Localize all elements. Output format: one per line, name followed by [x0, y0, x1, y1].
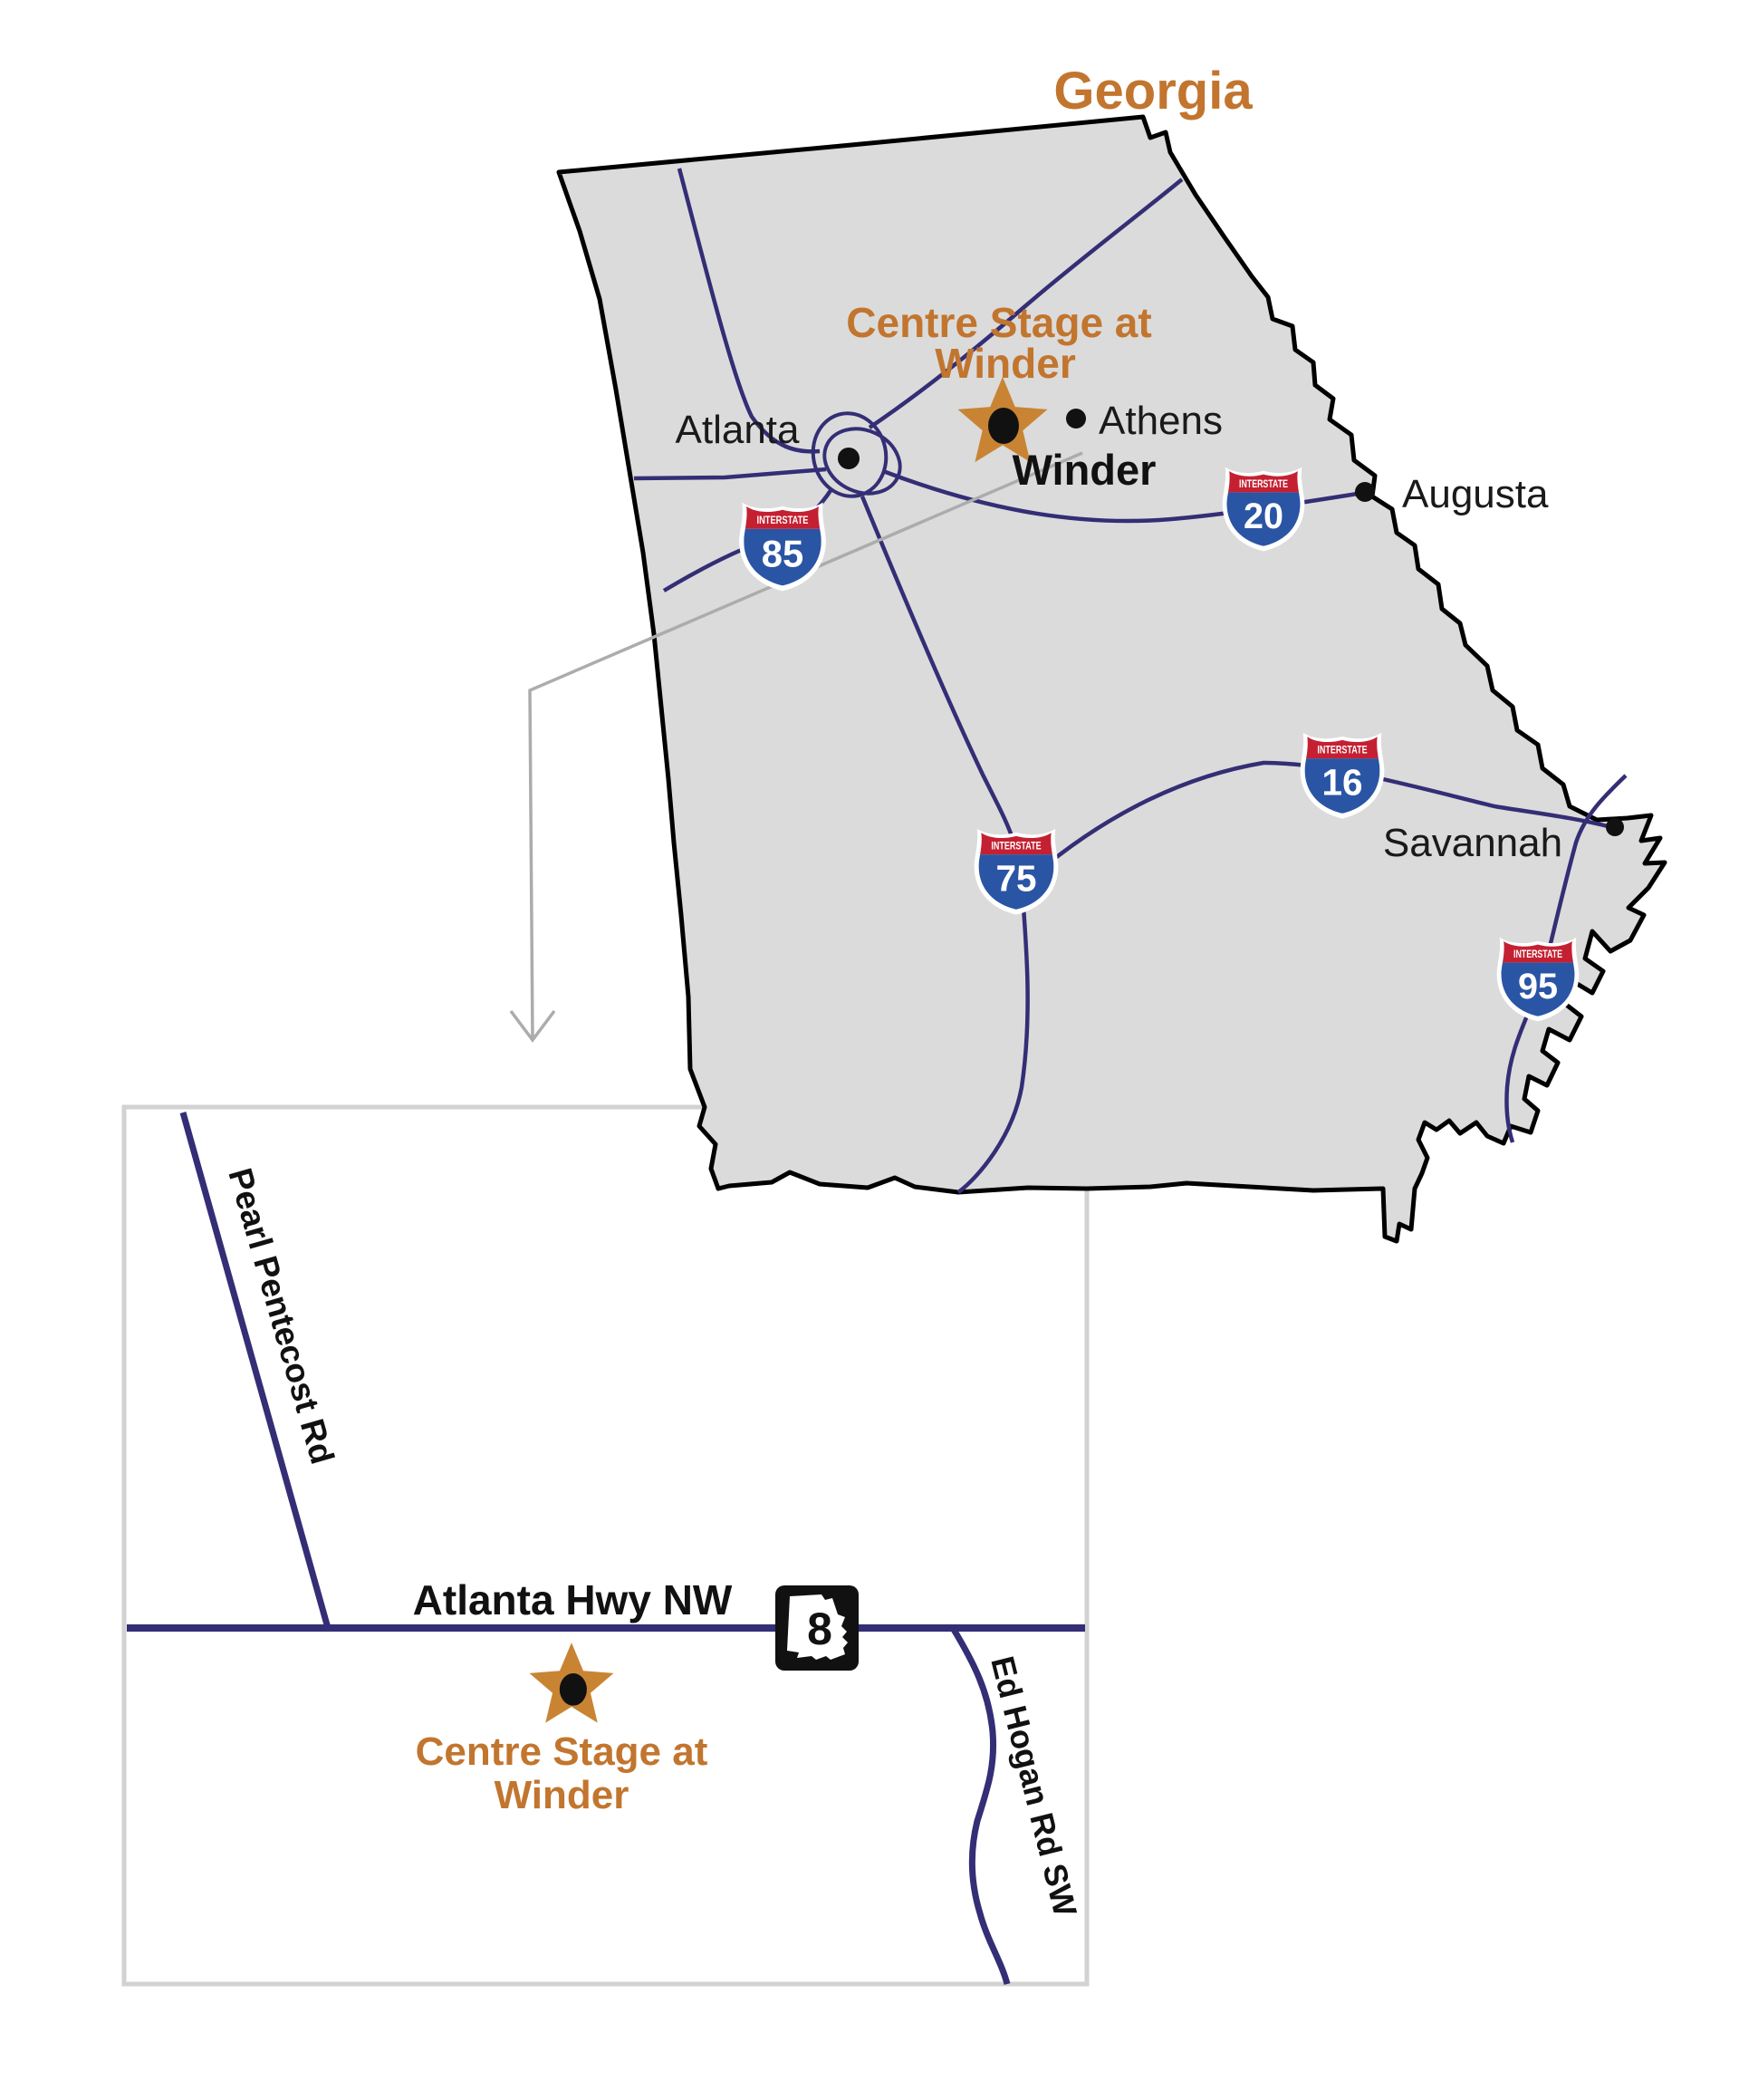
interstate-banner-text: INTERSTATE [1513, 949, 1562, 960]
georgia-outline [559, 117, 1665, 1241]
inset-venue-label-line2: Winder [495, 1773, 629, 1817]
interstate-number: 20 [1244, 496, 1283, 536]
georgia-state-map: INTERSTATE85INTERSTATE20INTERSTATE75INTE… [511, 62, 1665, 1241]
savannah-label: Savannah [1383, 821, 1562, 865]
atlanta-label: Atlanta [676, 408, 801, 452]
interstate-number: 75 [995, 858, 1036, 900]
winder-label: Winder [1013, 446, 1157, 494]
interstate-banner-text: INTERSTATE [757, 514, 809, 526]
inset-map: Pearl Pentecost Rd Atlanta Hwy NW Ed Hog… [124, 1107, 1087, 1984]
map-figure: Pearl Pentecost Rd Atlanta Hwy NW Ed Hog… [0, 0, 1739, 2100]
atlanta-dot [838, 448, 860, 469]
state-venue-label-line2: Winder [935, 340, 1076, 387]
athens-label: Athens [1099, 399, 1223, 443]
interstate-banner-text: INTERSTATE [991, 840, 1041, 853]
interstate-banner-text: INTERSTATE [1239, 478, 1288, 490]
interstate-number: 16 [1321, 762, 1362, 804]
ga-route-8-number: 8 [807, 1604, 832, 1654]
savannah-dot [1606, 818, 1624, 836]
inset-venue-dot [560, 1673, 587, 1706]
interstate-number: 85 [762, 533, 804, 575]
atlanta-hwy-label: Atlanta Hwy NW [413, 1576, 733, 1623]
map-title: Georgia [1053, 62, 1253, 120]
interstate-number: 95 [1518, 967, 1558, 1007]
ga-route-8-shield: 8 [775, 1585, 859, 1671]
inset-venue-label-line1: Centre Stage at [416, 1729, 708, 1774]
augusta-dot [1355, 482, 1375, 502]
interstate-banner-text: INTERSTATE [1317, 744, 1367, 756]
winder-dot [988, 408, 1019, 444]
athens-dot [1066, 409, 1086, 429]
augusta-label: Augusta [1402, 472, 1549, 516]
